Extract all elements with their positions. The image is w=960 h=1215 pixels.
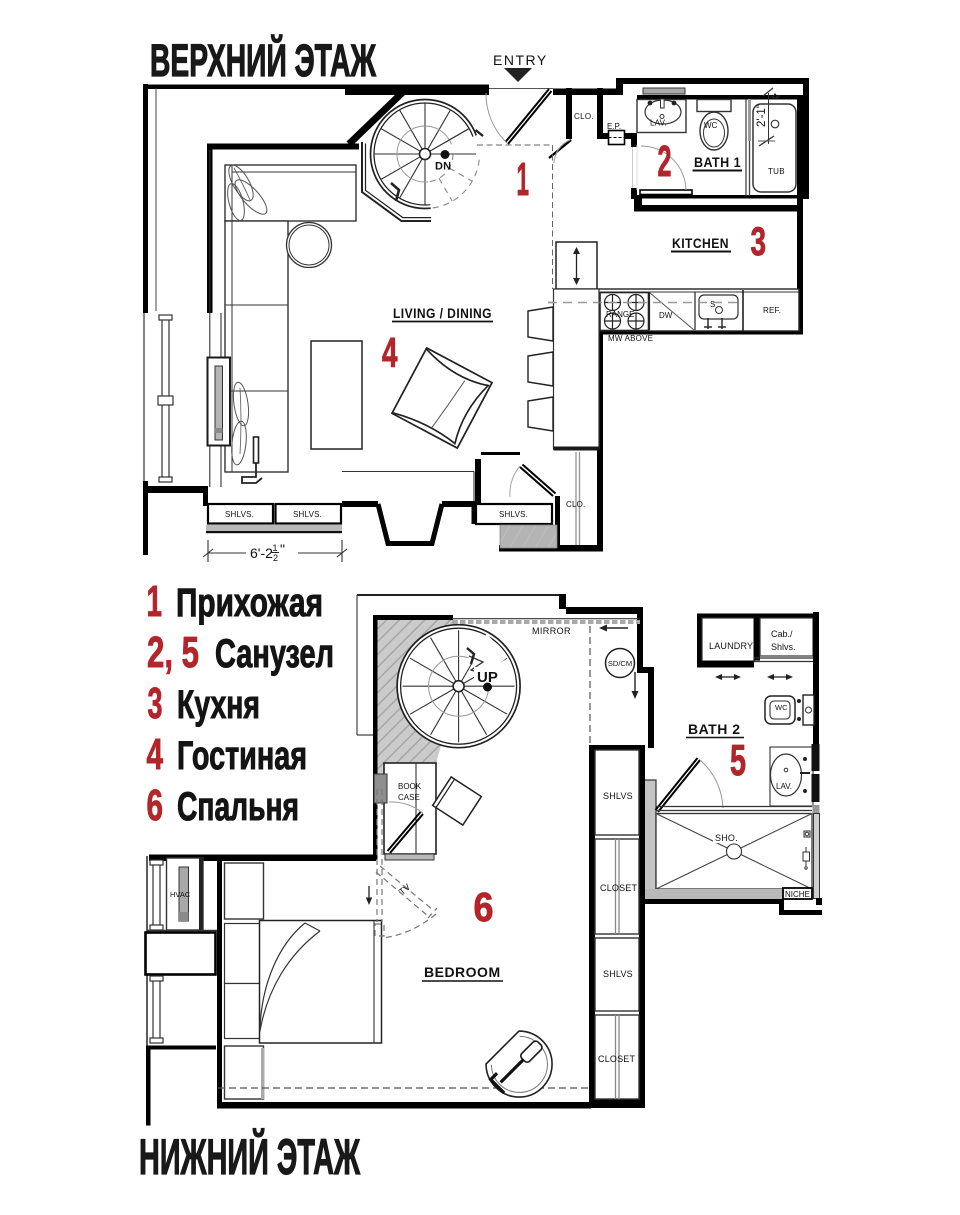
svg-text:SHLVS.: SHLVS. <box>293 510 322 519</box>
svg-text:BOOK: BOOK <box>398 782 422 791</box>
svg-text:ENTRY: ENTRY <box>493 52 548 68</box>
svg-text:": " <box>280 541 285 557</box>
svg-text:LAUNDRY: LAUNDRY <box>709 641 753 651</box>
svg-text:TUB: TUB <box>768 167 785 176</box>
svg-text:3: 3 <box>148 679 163 728</box>
svg-text:LAV.: LAV. <box>776 782 792 791</box>
svg-text:Shlvs.: Shlvs. <box>771 642 796 652</box>
svg-text:CLO.: CLO. <box>566 500 585 509</box>
svg-text:BATH 2: BATH 2 <box>688 721 741 737</box>
svg-text:MIRROR: MIRROR <box>532 626 571 636</box>
svg-text:Гостиная: Гостиная <box>177 734 307 778</box>
svg-text:1: 1 <box>273 543 278 553</box>
svg-text:E.P.: E.P. <box>607 122 621 131</box>
svg-text:WC: WC <box>775 703 788 712</box>
svg-text:CASE: CASE <box>398 793 420 802</box>
svg-text:2: 2 <box>273 553 278 563</box>
svg-text:Cab./: Cab./ <box>771 629 793 639</box>
svg-text:CLOSET: CLOSET <box>598 1054 636 1064</box>
svg-text:UP: UP <box>477 669 498 686</box>
svg-text:2, 5: 2, 5 <box>147 628 199 677</box>
svg-text:KITCHEN: KITCHEN <box>672 235 729 251</box>
svg-text:2: 2 <box>658 137 672 186</box>
svg-text:BATH 1: BATH 1 <box>694 154 741 170</box>
svg-text:6: 6 <box>147 781 164 830</box>
svg-text:MW ABOVE: MW ABOVE <box>608 334 653 343</box>
svg-text:SHLVS.: SHLVS. <box>499 510 528 519</box>
svg-text:DN: DN <box>435 161 451 173</box>
svg-text:CLO.: CLO. <box>574 112 594 121</box>
svg-text:HVAC: HVAC <box>170 890 191 899</box>
svg-text:Кухня: Кухня <box>177 683 260 727</box>
svg-text:1: 1 <box>517 153 530 205</box>
svg-text:S: S <box>710 300 715 309</box>
svg-text:2'-1": 2'-1" <box>756 104 768 127</box>
svg-text:REF.: REF. <box>763 306 781 315</box>
svg-text:WC: WC <box>704 121 718 130</box>
svg-text:BEDROOM: BEDROOM <box>424 964 501 980</box>
svg-text:NICHE: NICHE <box>785 890 810 899</box>
svg-text:CLOSET: CLOSET <box>600 883 638 893</box>
svg-text:LAV.: LAV. <box>650 119 667 128</box>
svg-text:Спальня: Спальня <box>177 785 299 829</box>
svg-text:SHLVS: SHLVS <box>603 969 633 979</box>
svg-text:SHLVS: SHLVS <box>603 791 633 801</box>
svg-text:Санузел: Санузел <box>215 632 334 676</box>
svg-text:НИЖНИЙ ЭТАЖ: НИЖНИЙ ЭТАЖ <box>139 1128 360 1185</box>
svg-text:LIVING / DINING: LIVING / DINING <box>393 305 492 321</box>
svg-text:ВЕРХНИЙ ЭТАЖ: ВЕРХНИЙ ЭТАЖ <box>150 35 376 86</box>
svg-text:SHO.: SHO. <box>715 833 738 843</box>
svg-text:SHLVS.: SHLVS. <box>225 510 254 519</box>
svg-text:1: 1 <box>147 577 163 626</box>
svg-text:Прихожая: Прихожая <box>176 581 323 625</box>
svg-text:4: 4 <box>147 730 164 779</box>
svg-text:5: 5 <box>730 736 746 785</box>
svg-text:RANGE: RANGE <box>606 310 634 319</box>
svg-text:6: 6 <box>474 884 494 930</box>
svg-text:DW: DW <box>659 311 673 320</box>
svg-text:3: 3 <box>751 220 767 264</box>
svg-text:6'-2: 6'-2 <box>250 545 273 561</box>
svg-text:4: 4 <box>382 329 398 376</box>
svg-text:SD/CM: SD/CM <box>608 659 632 668</box>
